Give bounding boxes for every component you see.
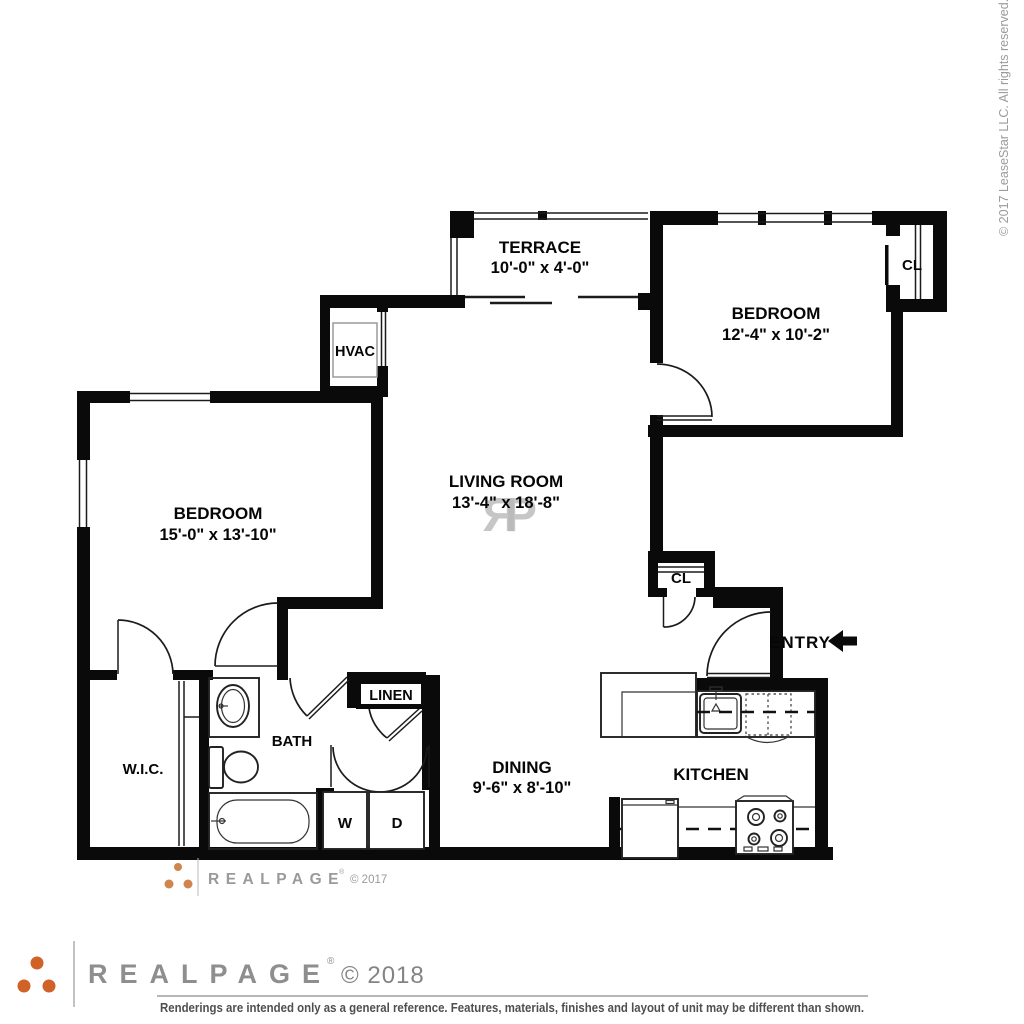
bath-label: BATH (272, 733, 313, 750)
footer-logo-dot-icon (43, 980, 56, 993)
credit-dot-icon (165, 880, 174, 889)
washer-label: W (338, 815, 353, 832)
bath-fixtures (209, 678, 317, 849)
plan-credit: REALPAGE ® © 2017 (165, 858, 388, 896)
floor-plan-canvas: R P TERRACE 10'-0" x 4'-0" BEDROOM 12'-4… (0, 0, 1024, 1024)
bedroom-left-label: BEDROOM (174, 504, 263, 523)
side-copyright: © 2017 LeaseStar LLC. All rights reserve… (997, 0, 1011, 236)
footer-logo-dot-icon (31, 957, 44, 970)
footer-brand: REALPAGE (88, 959, 332, 989)
linen-label: LINEN (369, 688, 413, 704)
kitchen-sink (700, 694, 741, 733)
kitchen-label: KITCHEN (673, 765, 749, 784)
bedroom-right-label: BEDROOM (732, 304, 821, 323)
footer-year: © 2018 (341, 962, 425, 989)
closet-hall-label: CL (671, 570, 691, 587)
hvac-label: HVAC (335, 344, 376, 360)
terrace-dims: 10'-0" x 4'-0" (491, 259, 590, 277)
toilet-bowl (224, 752, 258, 783)
dryer-label: D (392, 815, 403, 832)
footer: REALPAGE ® © 2018 Renderings are intende… (18, 941, 869, 1015)
living-room-dims: 13'-4" x 18'-8" (452, 494, 560, 512)
closet-upper-label: CL (902, 257, 922, 274)
peninsula-counter (601, 673, 696, 737)
footer-disclaimer: Renderings are intended only as a genera… (160, 1000, 864, 1015)
bedroom-right-dims: 12'-4" x 10'-2" (722, 326, 830, 344)
living-room-label: LIVING ROOM (449, 472, 563, 491)
credit-dot-icon (184, 880, 193, 889)
dining-label: DINING (492, 758, 552, 777)
credit-brand: REALPAGE (208, 871, 345, 888)
entry-annotation: ENTRY (769, 630, 857, 652)
stove (736, 801, 793, 854)
terrace-label: TERRACE (499, 238, 581, 257)
dining-dims: 9'-6" x 8'-10" (473, 779, 572, 797)
footer-reg: ® (327, 956, 335, 967)
bedroom-left-dims: 15'-0" x 13'-10" (159, 526, 276, 544)
footer-logo-dot-icon (18, 980, 31, 993)
floor-plan-page: R P TERRACE 10'-0" x 4'-0" BEDROOM 12'-4… (0, 0, 1024, 1024)
credit-year: © 2017 (350, 874, 387, 886)
entry-arrow-icon (828, 630, 857, 652)
refrigerator (622, 799, 678, 858)
wic-label: W.I.C. (123, 761, 164, 778)
credit-reg: ® (339, 868, 345, 876)
entry-label: ENTRY (769, 633, 831, 652)
credit-dot-icon (174, 863, 182, 871)
toilet-tank (209, 747, 223, 788)
